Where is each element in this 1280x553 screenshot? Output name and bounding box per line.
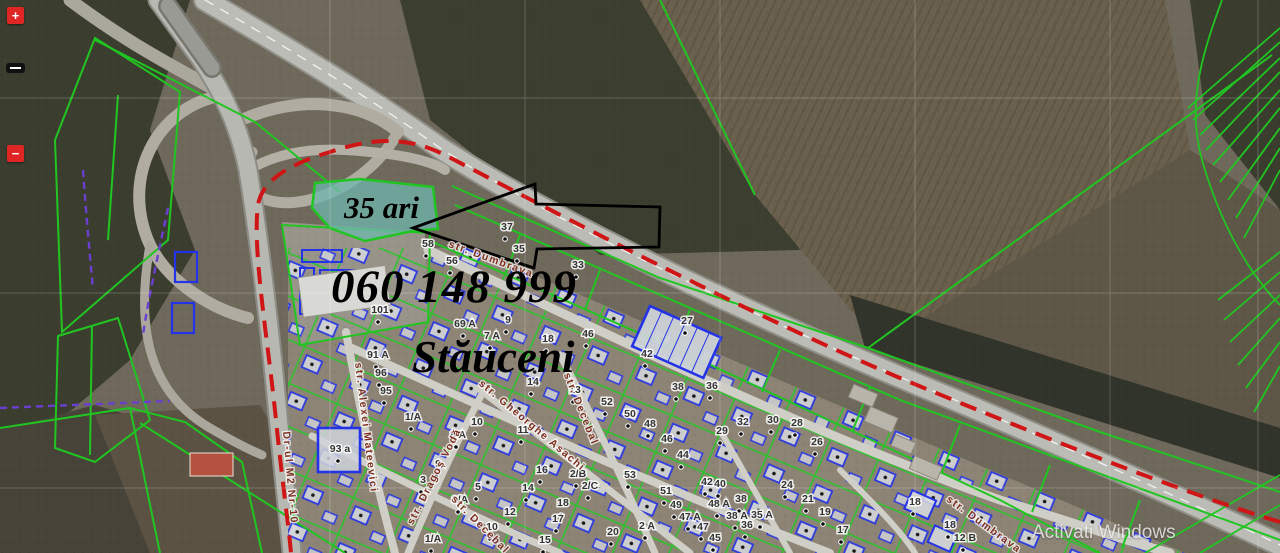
parcel-number-label: 21 bbox=[802, 493, 814, 505]
parcel-number-label: 46 bbox=[661, 433, 673, 445]
parcel-centroid-dot bbox=[683, 331, 688, 336]
parcel-centroid-dot bbox=[429, 549, 434, 553]
parcel-centroid-dot bbox=[758, 525, 763, 530]
parcel-number-label: 5 bbox=[475, 481, 481, 493]
parcel-centroid-dot bbox=[911, 512, 916, 517]
parcel-centroid-dot bbox=[424, 254, 429, 259]
parcel-number-label: 2 A bbox=[639, 520, 655, 532]
parcel-centroid-dot bbox=[626, 485, 631, 490]
parcel-number-label: 51 bbox=[660, 485, 672, 497]
parcel-number-label: 26 bbox=[811, 436, 823, 448]
parcel-centroid-dot bbox=[603, 412, 608, 417]
parcel-number-label: 42 bbox=[641, 348, 653, 360]
parcel-centroid-dot bbox=[584, 344, 589, 349]
parcel-centroid-dot bbox=[739, 432, 744, 437]
parcel-number-label: 47 bbox=[697, 521, 709, 533]
parcel-number-label: 24 bbox=[781, 479, 793, 491]
parcel-number-label: 2/C bbox=[582, 480, 599, 492]
parcel-number-label: 18 bbox=[909, 496, 921, 508]
parcel-number-label: 38 bbox=[672, 381, 684, 393]
zoom-out-button[interactable]: − bbox=[7, 145, 24, 162]
parcel-centroid-dot bbox=[663, 449, 668, 454]
parcel-centroid-dot bbox=[946, 535, 951, 540]
parcel-centroid-dot bbox=[733, 526, 738, 531]
satellite-map-canvas: 58563735332742383610169 A7 A9184691 A969… bbox=[0, 0, 1280, 553]
parcel-centroid-dot bbox=[554, 529, 559, 534]
parcel-number-label: 48 bbox=[644, 418, 656, 430]
parcel-centroid-dot bbox=[409, 427, 414, 432]
parcel-number-label: 42 bbox=[701, 476, 713, 488]
parcel-number-label: 1/A bbox=[405, 411, 422, 423]
windows-activation-watermark: Activati Windows bbox=[1032, 522, 1176, 544]
parcel-number-label: 45 bbox=[709, 532, 721, 544]
parcel-centroid-dot bbox=[662, 501, 667, 506]
zoom-in-button[interactable]: + bbox=[7, 7, 24, 24]
parcel-number-label: 29 bbox=[716, 425, 728, 437]
parcel-number-label: 16 bbox=[536, 464, 548, 476]
parcel-centroid-dot bbox=[821, 522, 826, 527]
parcel-number-label: 30 bbox=[767, 414, 779, 426]
parcel-centroid-dot bbox=[506, 522, 511, 527]
parcel-number-label: 27 bbox=[681, 315, 693, 327]
parcel-number-label: 46 bbox=[582, 328, 594, 340]
parcel-number-label: 28 bbox=[791, 417, 803, 429]
parcel-number-label: 12 B bbox=[954, 532, 977, 544]
parcel-centroid-dot bbox=[626, 424, 631, 429]
parcel-centroid-dot bbox=[503, 237, 508, 242]
parcel-centroid-dot bbox=[699, 537, 704, 542]
parcel-centroid-dot bbox=[538, 480, 543, 485]
parcel-number-label: 36 bbox=[706, 380, 718, 392]
parcel-number-label: 93 a bbox=[330, 443, 351, 455]
parcel-centroid-dot bbox=[718, 441, 723, 446]
parcel-number-label: 44 bbox=[677, 449, 689, 461]
parcel-centroid-dot bbox=[529, 392, 534, 397]
parcel-number-label: 20 bbox=[607, 526, 619, 538]
parcel-centroid-dot bbox=[674, 397, 679, 402]
parcel-number-label: 1/A bbox=[425, 533, 442, 545]
parcel-number-label: 52 bbox=[601, 396, 613, 408]
parcel-number-label: 17 bbox=[552, 513, 564, 525]
parcel-centroid-dot bbox=[839, 540, 844, 545]
parcel-centroid-dot bbox=[643, 536, 648, 541]
parcel-number-label: 9 bbox=[505, 314, 511, 326]
parcel-centroid-dot bbox=[708, 396, 713, 401]
parcel-centroid-dot bbox=[336, 459, 341, 464]
parcel-centroid-dot bbox=[672, 515, 677, 520]
area-size-label: 35 ari bbox=[344, 192, 419, 223]
parcel-number-label: 40 bbox=[714, 478, 726, 490]
parcel-centroid-dot bbox=[793, 433, 798, 438]
parcel-number-label: 49 bbox=[670, 499, 682, 511]
map-viewport[interactable]: 58563735332742383610169 A7 A9184691 A969… bbox=[0, 0, 1280, 553]
parcel-centroid-dot bbox=[783, 495, 788, 500]
parcel-centroid-dot bbox=[376, 320, 381, 325]
parcel-centroid-dot bbox=[382, 401, 387, 406]
parcel-centroid-dot bbox=[474, 497, 479, 502]
parcel-number-label: 10 bbox=[471, 416, 483, 428]
parcel-centroid-dot bbox=[643, 364, 648, 369]
parcel-number-label: 15 bbox=[539, 534, 551, 546]
parcel-number-label: 35 A bbox=[751, 509, 773, 521]
town-name-label: Stăuceni bbox=[412, 335, 575, 380]
parcel-centroid-dot bbox=[574, 484, 579, 489]
parcel-number-label: 18 bbox=[944, 519, 956, 531]
parcel-number-label: 19 bbox=[819, 506, 831, 518]
parcel-centroid-dot bbox=[524, 498, 529, 503]
parcel-number-label: 95 bbox=[380, 385, 392, 397]
parcel-centroid-dot bbox=[711, 548, 716, 553]
parcel-centroid-dot bbox=[609, 542, 614, 547]
parcel-centroid-dot bbox=[586, 496, 591, 501]
parcel-number-label: 50 bbox=[624, 408, 636, 420]
parcel-centroid-dot bbox=[743, 535, 748, 540]
parcel-number-label: 58 bbox=[422, 238, 434, 250]
parcel-number-label: 32 bbox=[737, 416, 749, 428]
parcel-centroid-dot bbox=[813, 452, 818, 457]
parcel-number-label: 48 A bbox=[708, 498, 730, 510]
parcel-number-label: 35 bbox=[513, 243, 525, 255]
parcel-centroid-dot bbox=[686, 527, 691, 532]
parcel-centroid-dot bbox=[703, 492, 708, 497]
parcel-number-label: 14 bbox=[522, 482, 534, 494]
parcel-number-label: 91 A bbox=[367, 349, 389, 361]
parcel-centroid-dot bbox=[804, 509, 809, 514]
parcel-number-label: 37 bbox=[501, 221, 513, 233]
zoom-slider-handle[interactable] bbox=[6, 63, 25, 73]
parcel-number-label: 53 bbox=[624, 469, 636, 481]
parcel-number-label: 96 bbox=[375, 367, 387, 379]
parcel-centroid-dot bbox=[715, 514, 720, 519]
parcel-number-label: 12 bbox=[504, 506, 516, 518]
parcel-centroid-dot bbox=[519, 440, 524, 445]
parcel-number-label: 17 bbox=[837, 524, 849, 536]
parcel-number-label: 69 A bbox=[454, 318, 476, 330]
phone-number-label: 060 148 999 bbox=[331, 264, 577, 311]
parcel-centroid-dot bbox=[769, 430, 774, 435]
parcel-number-label: 18 bbox=[557, 497, 569, 509]
parcel-centroid-dot bbox=[961, 548, 966, 553]
parcel-centroid-dot bbox=[473, 432, 478, 437]
parcel-centroid-dot bbox=[679, 465, 684, 470]
parcel-centroid-dot bbox=[646, 434, 651, 439]
parcel-number-label: 38 bbox=[735, 493, 747, 505]
